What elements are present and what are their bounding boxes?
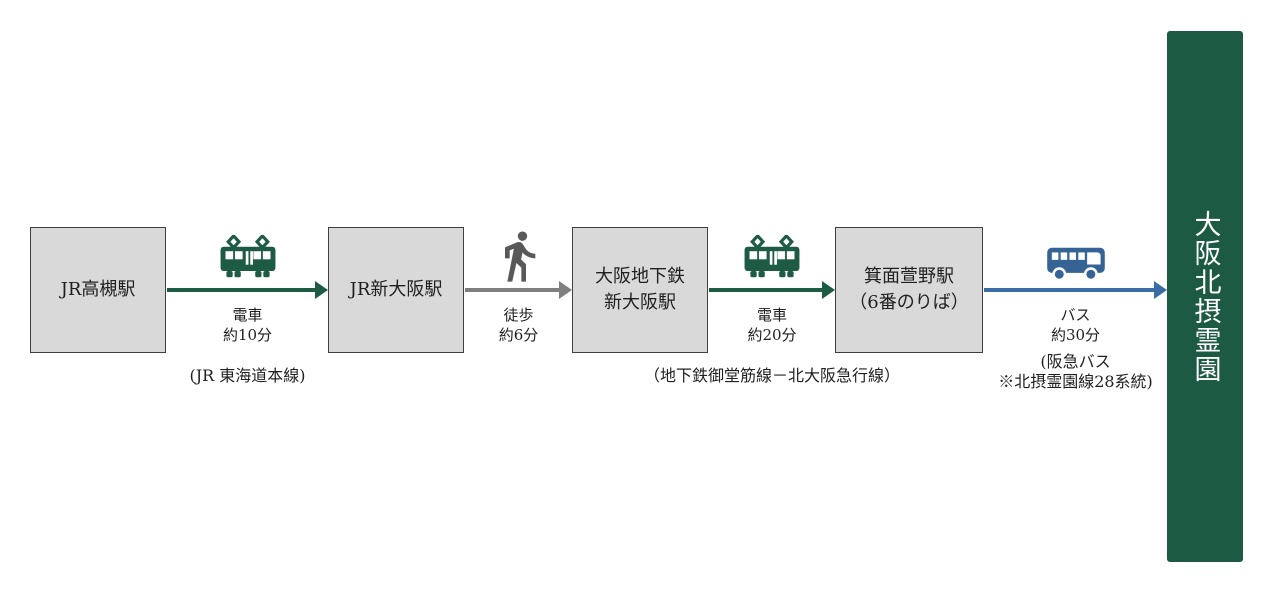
route-diagram: JR高槻駅 電車 約10分 [0,0,1280,600]
segment-mode-label: 徒歩 [499,305,539,325]
segment-note: (JR 東海道本線) [189,366,305,386]
station-box-jr-shin-osaka: JR新大阪駅 [328,227,464,353]
segment-mode-label: 電車 [747,305,796,325]
route-arrow [465,288,561,292]
route-segment-train-1: 電車 約10分 (JR 東海道本線) [167,225,328,395]
station-name: JR高槻駅 [61,277,136,303]
train-icon [743,235,801,284]
route-arrow [984,288,1156,292]
station-name: JR新大阪駅 [350,277,443,303]
segment-mode-label: 電車 [223,305,272,325]
route-arrow-head [559,281,572,299]
destination-name: 大阪北摂霊園 [1167,31,1243,562]
station-name: 大阪地下鉄 [595,264,685,290]
segment-duration: 約6分 [499,325,539,345]
segment-duration: 約20分 [747,325,796,345]
station-box-jr-takatsuki: JR高槻駅 [30,227,166,353]
segment-note: (阪急バス [998,352,1153,372]
route-arrow [709,288,824,292]
route-arrow-head [822,281,835,299]
route-arrow-head [315,281,328,299]
route-segment-bus: バス 約30分 (阪急バス ※北摂霊園線28系統) [984,225,1167,395]
station-name-line2: 新大阪駅 [604,290,676,316]
segment-duration: 約10分 [223,325,272,345]
walk-icon [491,228,547,288]
route-segment-walk: 徒歩 約6分 [465,225,572,395]
segment-note: （地下鉄御堂筋線－北大阪急行線） [644,366,900,386]
route-arrow-head [1154,281,1167,299]
bus-icon [1046,245,1106,288]
destination-banner: 大阪北摂霊園 [1167,31,1243,562]
station-box-minoh-kayano: 箕面萱野駅 （6番のりば） [835,227,983,353]
segment-duration: 約30分 [1051,325,1100,345]
segment-note-line2: ※北摂霊園線28系統) [998,372,1153,392]
segment-mode-label: バス [1051,305,1100,325]
station-box-metro-shin-osaka: 大阪地下鉄 新大阪駅 [572,227,708,353]
route-arrow [167,288,317,292]
station-name-line2: （6番のりば） [849,290,968,316]
route-segment-train-2: 電車 約20分 （地下鉄御堂筋線－北大阪急行線） [709,225,835,395]
station-name: 箕面萱野駅 [864,264,954,290]
train-icon [219,235,277,284]
